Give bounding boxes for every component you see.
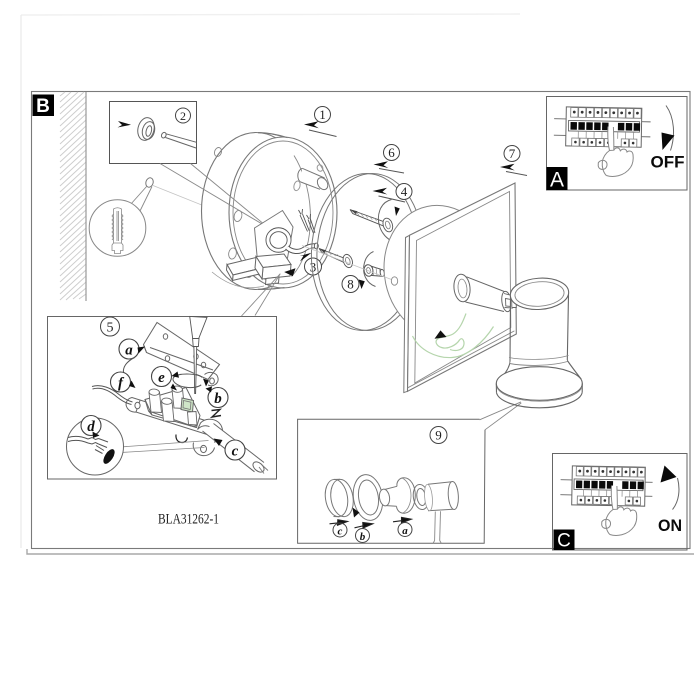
svg-text:1: 1 <box>319 107 326 122</box>
svg-text:5: 5 <box>107 321 114 336</box>
svg-text:OFF: OFF <box>651 153 685 172</box>
svg-text:A: A <box>550 169 564 192</box>
svg-text:a: a <box>402 525 408 537</box>
svg-text:9: 9 <box>435 428 442 443</box>
svg-text:ON: ON <box>658 516 682 535</box>
svg-text:e: e <box>158 370 165 386</box>
svg-text:2: 2 <box>180 109 186 123</box>
svg-text:b: b <box>214 391 222 407</box>
svg-text:6: 6 <box>388 145 395 160</box>
svg-text:B: B <box>36 96 50 117</box>
svg-text:c: c <box>232 444 239 460</box>
svg-text:8: 8 <box>347 277 354 292</box>
svg-text:C: C <box>557 531 571 552</box>
svg-text:c: c <box>338 526 343 538</box>
svg-text:a: a <box>125 343 133 359</box>
svg-text:BLA31262-1: BLA31262-1 <box>158 512 219 528</box>
svg-text:7: 7 <box>509 146 516 161</box>
svg-text:4: 4 <box>401 184 408 199</box>
svg-text:b: b <box>360 531 366 543</box>
